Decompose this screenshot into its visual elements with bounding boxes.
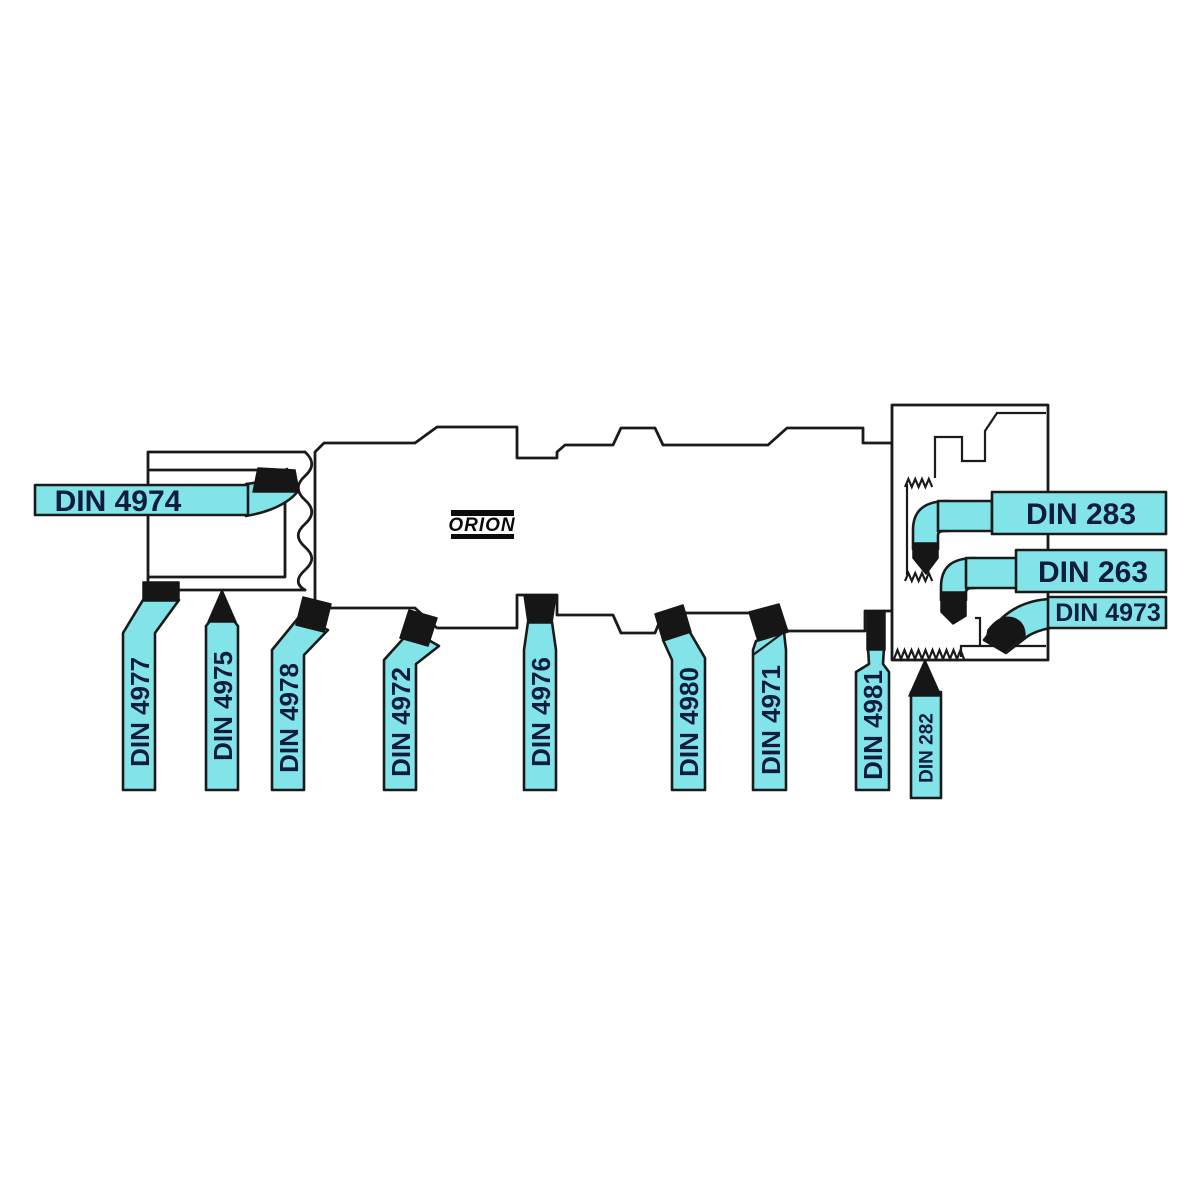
stepped-shaft-profile — [315, 427, 892, 633]
tool-din-4975: DIN 4975 — [206, 590, 238, 790]
tool-din-4976-tip — [524, 595, 556, 623]
tool-din-4974-tip — [253, 468, 299, 492]
tool-din-4971-label: DIN 4971 — [756, 665, 786, 775]
tool-din-4980-label: DIN 4980 — [674, 667, 704, 777]
tool-din-4978-label: DIN 4978 — [274, 663, 304, 773]
tool-din-4972-label: DIN 4972 — [386, 667, 416, 777]
tool-din-4978-tip — [296, 597, 331, 632]
tool-din-4976: DIN 4976 — [524, 595, 556, 790]
tool-din-282: DIN 282 — [909, 660, 941, 798]
tool-din-4971: DIN 4971 — [749, 604, 788, 790]
tool-din-4977-tip — [143, 582, 179, 601]
tool-din-4974: DIN 4974 — [35, 468, 299, 518]
tool-din-4981: DIN 4981 — [856, 611, 889, 790]
break-wavy-line — [298, 452, 312, 590]
tool-din-4981-tip — [867, 611, 885, 650]
tool-din-263-label: DIN 263 — [1038, 556, 1148, 589]
brand-text: ORION — [448, 515, 516, 536]
tool-din-282-label: DIN 282 — [917, 713, 938, 783]
tool-din-282-tip — [909, 660, 941, 696]
tool-din-4974-label: DIN 4974 — [55, 485, 182, 518]
tool-din-4972: DIN 4972 — [384, 610, 439, 790]
tool-din-4975-label: DIN 4975 — [208, 651, 238, 761]
tool-din-4977: DIN 4977 — [123, 582, 179, 790]
tool-din-263-shank — [966, 558, 1018, 588]
tool-din-283-label: DIN 283 — [1026, 498, 1136, 531]
tool-din-4980: DIN 4980 — [655, 605, 705, 790]
brand-bar-underline — [451, 534, 514, 539]
tool-din-4981-label: DIN 4981 — [858, 670, 888, 780]
tool-din-4978: DIN 4978 — [272, 597, 331, 790]
diagram-page: ORION DIN 4974 DIN 4977 DIN 4975 DIN 497… — [0, 0, 1200, 1200]
lathe-tools-diagram: ORION DIN 4974 DIN 4977 DIN 4975 DIN 497… — [0, 0, 1200, 1200]
tool-din-283-shank — [938, 501, 992, 531]
tool-din-4976-label: DIN 4976 — [526, 657, 556, 767]
brand-emblem: ORION — [448, 510, 516, 539]
tool-din-4973-label: DIN 4973 — [1055, 599, 1161, 627]
tool-din-4975-tip — [208, 590, 236, 622]
tool-din-4977-label: DIN 4977 — [125, 657, 155, 767]
